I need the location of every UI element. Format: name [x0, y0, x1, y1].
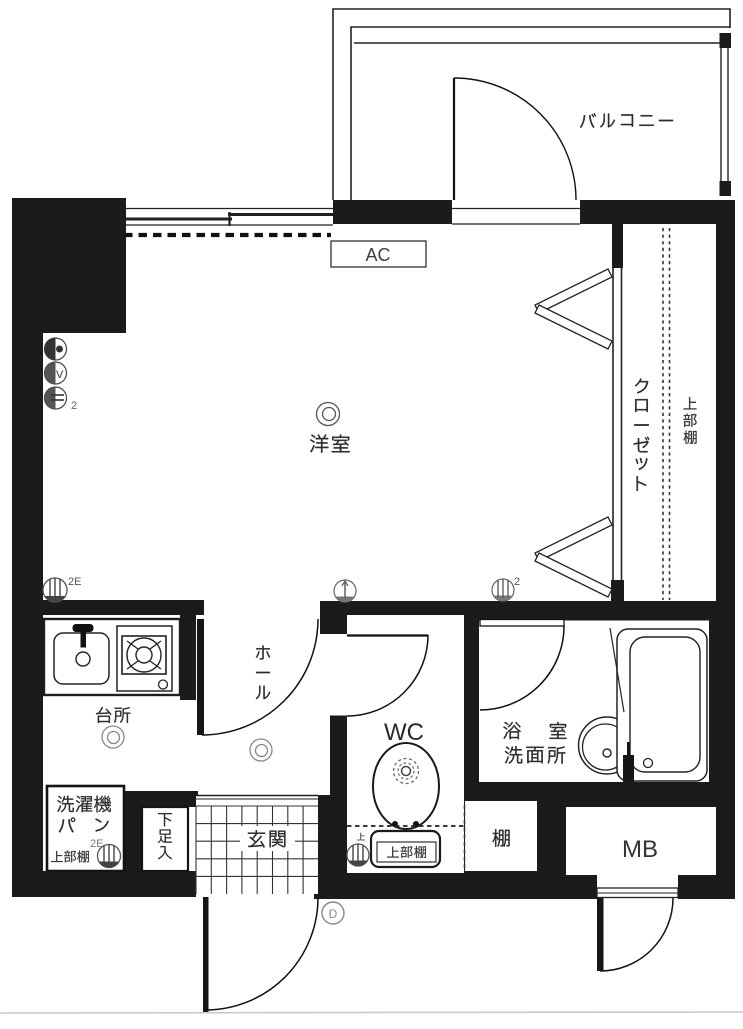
svg-text:2: 2 — [514, 576, 520, 588]
svg-text:2E: 2E — [68, 576, 81, 588]
svg-text:MB: MB — [622, 836, 658, 863]
svg-text:AC: AC — [365, 245, 390, 265]
svg-text:2: 2 — [71, 400, 77, 412]
svg-text:WC: WC — [384, 719, 424, 746]
svg-text:D: D — [329, 907, 338, 921]
svg-text:V: V — [56, 369, 64, 381]
